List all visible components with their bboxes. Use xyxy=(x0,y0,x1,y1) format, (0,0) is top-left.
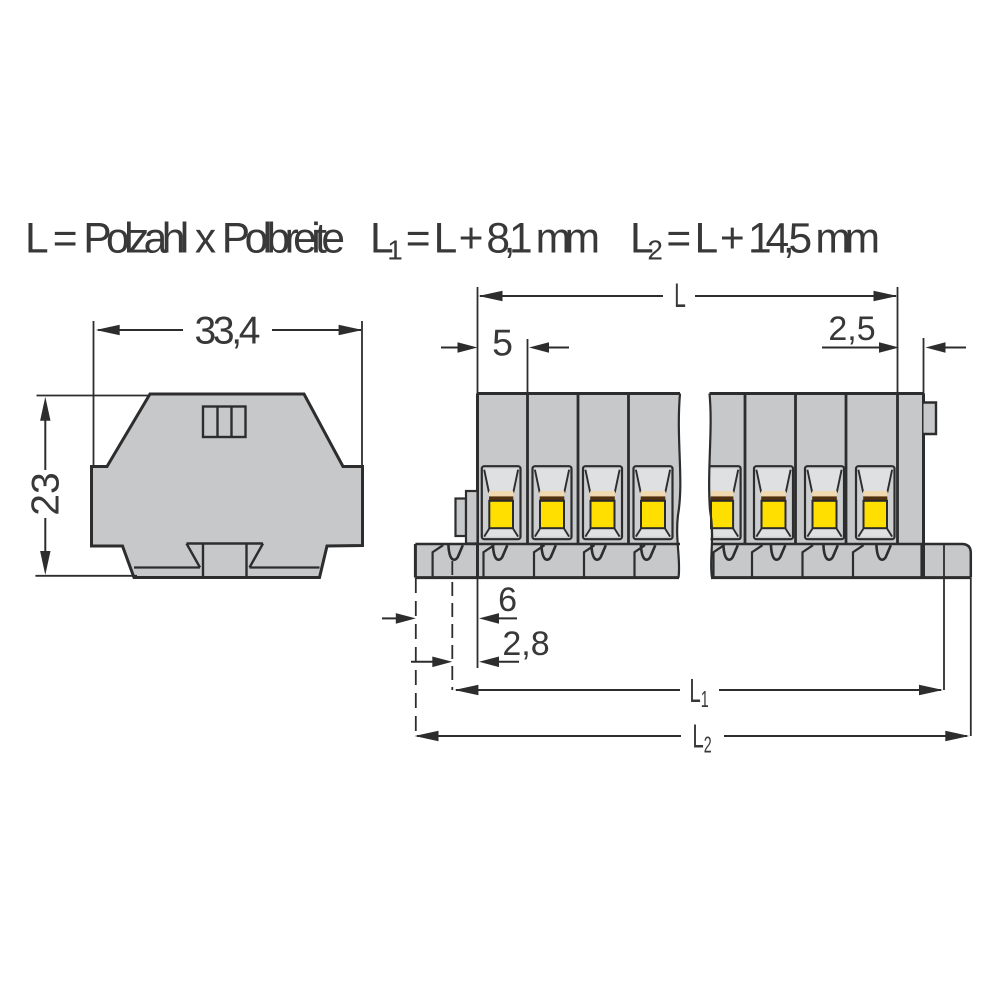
svg-text:6: 6 xyxy=(498,581,517,619)
svg-text:L2 = L + 14,5 mm: L2 = L + 14,5 mm xyxy=(630,216,880,266)
svg-text:L = Polzahl x Polbreite: L = Polzahl x Polbreite xyxy=(25,216,345,263)
svg-text:2,8: 2,8 xyxy=(502,625,549,663)
svg-text:L1 = L + 8,1 mm: L1 = L + 8,1 mm xyxy=(370,216,600,266)
svg-text:5: 5 xyxy=(492,322,513,364)
svg-text:23: 23 xyxy=(25,472,68,515)
svg-text:33,4: 33,4 xyxy=(195,310,261,353)
svg-text:2,5: 2,5 xyxy=(828,310,875,348)
svg-text:L: L xyxy=(674,276,686,314)
